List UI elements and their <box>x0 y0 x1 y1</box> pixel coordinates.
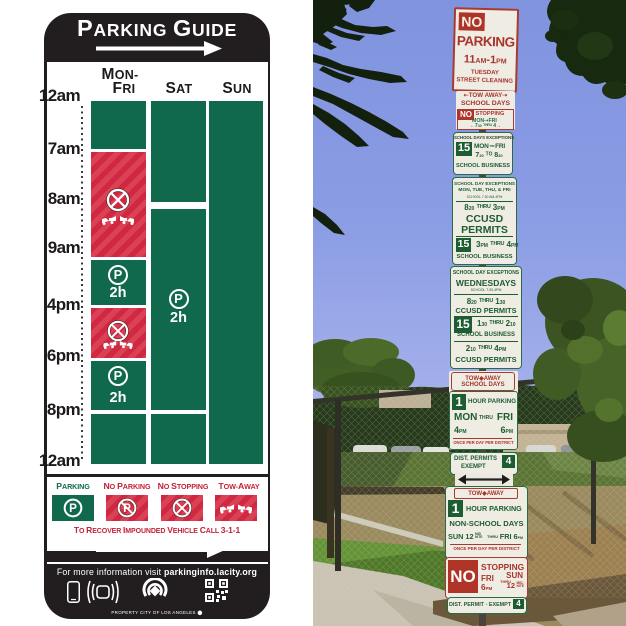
svg-text:P: P <box>69 502 77 515</box>
